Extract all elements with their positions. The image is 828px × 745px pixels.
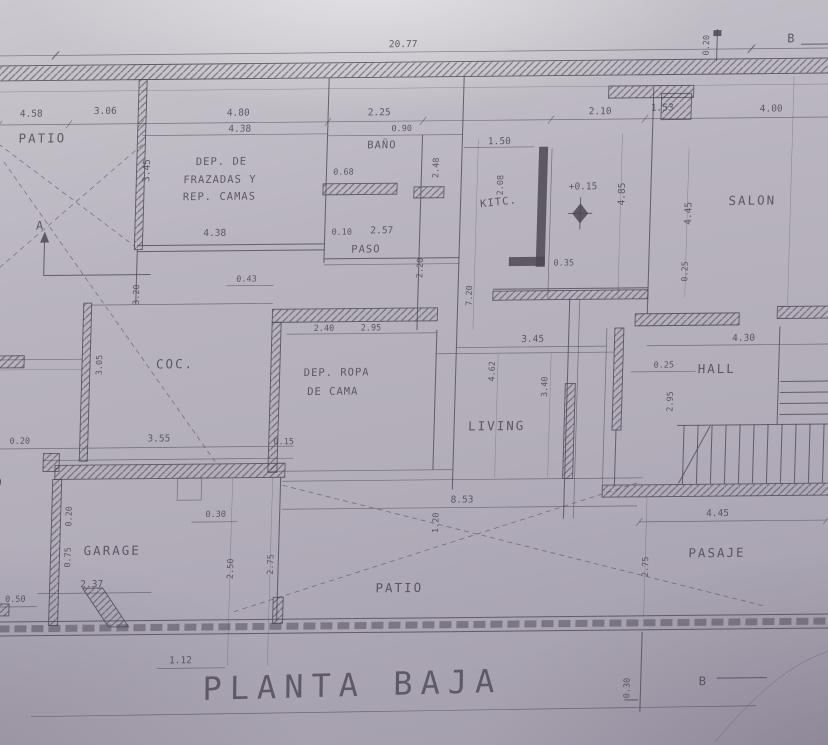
wall-frazadas-bottom: 4.38 — [137, 227, 325, 252]
dim-bano-h: 2.48 — [431, 157, 442, 178]
room-label-patio-bottom: PATIO — [375, 580, 423, 595]
dep-ropa-area: 2.40 2.95 DEP. ROPA DE CAMA — [268, 308, 458, 473]
patio-bottom-area: 8.53 1.20 2.50 2.75 PATIO — [223, 473, 770, 666]
room-label-garage: GARAGE — [83, 543, 141, 559]
living-area: 3.45 4.62 3.40 LIVING — [431, 298, 615, 520]
dim-paso-width: 4.38 — [203, 228, 226, 239]
room-label-frazadas-1: DEP. DE — [196, 156, 248, 168]
dim-garage-door: 0.30 — [205, 510, 226, 520]
room-label-pasaje: PASAJE — [688, 545, 746, 561]
dim-living-h: 4.62 — [487, 361, 498, 382]
top-dimension-row: 4.58 3.06 4.80 4.38 2.25 0.90 2.10 1.53 … — [0, 99, 828, 138]
side-stairs — [777, 326, 828, 425]
dim-salon-width: 4.00 — [760, 103, 783, 114]
dim-mid-a: 0.20 — [9, 437, 30, 447]
dim-patio2-h2: 2.75 — [266, 554, 277, 575]
room-label-salon: SALON — [728, 193, 776, 208]
main-stairs — [602, 424, 828, 497]
dim-salon-h1: 4.85 — [616, 182, 628, 205]
dim-bano-d: 0.68 — [333, 168, 354, 178]
dim-garage-bw: 1.12 — [169, 655, 192, 666]
dim-paso-a: 0.10 — [331, 228, 352, 238]
dim-garage-b: 0.75 — [63, 547, 74, 568]
lobby-right-line — [548, 149, 552, 299]
dim-paso-h: 2.20 — [415, 258, 426, 279]
dim-pasaje-h: 2.75 — [641, 556, 652, 577]
level-marker-icon: +0.15 — [567, 181, 597, 229]
wall-lobby-solid-h — [509, 257, 545, 266]
room-label-patio-top: PATIO — [18, 130, 66, 145]
wall-lobby-solid-v — [536, 147, 548, 267]
room-label-paso: PASO — [351, 243, 381, 255]
dim-coc-s: 0.43 — [236, 275, 257, 285]
section-b-bottom-datum: 0.30 B — [622, 631, 768, 712]
room-label-patio-left: TIO — [0, 477, 3, 489]
dim-salon-s: 0.25 — [680, 261, 691, 282]
dim-top-left-b: 3.06 — [94, 106, 117, 117]
dim-ropa-b: 2.95 — [361, 323, 382, 333]
room-label-hall: HALL — [697, 361, 736, 376]
room-label-frazadas-2: FRAZADAS Y — [183, 174, 257, 187]
room-label-coc: COC. — [156, 356, 195, 371]
dim-salon-a: 2.10 — [589, 106, 612, 117]
hall-area: 4.30 0.25 HALL 2.95 — [602, 306, 828, 485]
dim-hall-width: 4.30 — [732, 333, 755, 344]
wall-lobby-bottom — [493, 288, 648, 300]
pasaje-area: 4.45 PASAJE 2.75 — [634, 496, 828, 616]
dim-salon-t: 0.35 — [553, 258, 574, 268]
dim-patio2-h1: 2.50 — [226, 558, 237, 579]
dim-ropa-a: 2.40 — [314, 324, 335, 334]
section-a-arrow-icon — [40, 231, 49, 242]
room-label-ropa-2: DE CAMA — [307, 386, 359, 398]
section-b-top-datum: 0.20 B — [702, 28, 828, 61]
section-b-top-label: B — [787, 31, 795, 45]
dim-patio2-width: 8.53 — [450, 494, 473, 505]
dim-kitc-h: 2.08 — [496, 175, 507, 196]
dim-living-h2: 3.40 — [540, 376, 551, 397]
dim-coc-v: 3.20 — [132, 284, 143, 305]
dim-hall-h: 2.95 — [665, 391, 676, 412]
patio-top-diagonals — [0, 142, 224, 464]
room-label-living: LIVING — [468, 418, 526, 434]
dim-left-s: 0.50 — [5, 595, 26, 605]
dim-hall-s: 0.25 — [653, 361, 674, 371]
room-label-ropa-1: DEP. ROPA — [304, 366, 370, 379]
dim-frazadas-width: 4.80 — [227, 108, 250, 119]
dim-mid-b: 3.55 — [147, 433, 170, 444]
dim-kitc-width: 1.50 — [488, 136, 511, 147]
level-marker-value: +0.15 — [569, 181, 598, 192]
paso-area: 0.10 2.57 PASO 2.20 — [323, 225, 460, 280]
dim-garage-a: 0.20 — [64, 506, 75, 527]
top-boundary-wall — [0, 58, 828, 82]
dim-bano-small: 0.90 — [391, 124, 412, 134]
drawing-title: PLANTA BAJA — [202, 662, 502, 708]
dim-mid-c: 0.15 — [273, 437, 294, 447]
dim-b-bottom: 0.30 — [622, 678, 633, 699]
plan-sheet: 20.77 0.20 B 4.58 3.06 4.80 4.38 2.25 0.… — [0, 28, 828, 745]
dim-coc-h: 3.05 — [95, 355, 106, 376]
section-b-bottom-label: B — [699, 674, 707, 688]
dim-pasaje-width: 4.45 — [706, 508, 729, 519]
dim-living-width: 3.45 — [521, 334, 544, 345]
kitc-area: 1.50 KITC. 2.08 — [462, 136, 534, 211]
paper-edge-curve — [715, 651, 828, 742]
dim-salon-h2: 4.45 — [683, 202, 695, 225]
dim-overall-width: 20.77 — [389, 39, 418, 50]
title-underline — [31, 706, 756, 717]
bottom-boundary-wall — [0, 614, 828, 636]
dim-bano-width: 2.25 — [368, 107, 391, 118]
dim-frazadas-width2: 4.38 — [228, 124, 251, 135]
dim-b-top: 0.20 — [702, 35, 713, 56]
dim-top-left-a: 4.58 — [20, 109, 43, 120]
section-a-label: A — [36, 219, 44, 233]
floor-plan-canvas: 20.77 0.20 B 4.58 3.06 4.80 4.38 2.25 0.… — [0, 0, 828, 745]
room-label-bano: BAÑO — [367, 138, 397, 151]
dim-col-h: 7.20 — [465, 285, 476, 306]
top-inner-line — [0, 84, 828, 92]
garage-area: 0.30 0.20 0.75 GARAGE 2.37 0.50 1.12 — [0, 463, 287, 670]
room-label-kitc: KITC. — [480, 194, 517, 210]
room-label-frazadas-3: REP. CAMAS — [183, 191, 257, 204]
coc-area: 0.43 3.20 COC. 3.05 — [79, 274, 273, 461]
dim-paso-b: 2.57 — [370, 225, 393, 236]
